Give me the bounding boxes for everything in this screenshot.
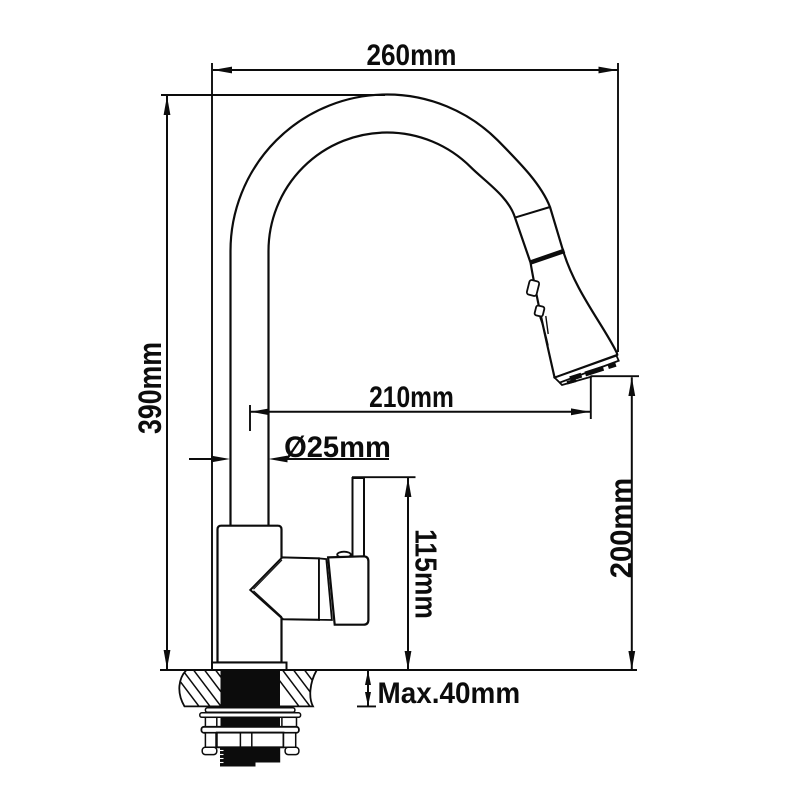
svg-text:210mm: 210mm: [369, 380, 454, 414]
svg-text:115mm: 115mm: [408, 529, 442, 619]
svg-text:Ø25mm: Ø25mm: [284, 430, 391, 463]
svg-text:260mm: 260mm: [367, 39, 457, 72]
svg-text:Max.40mm: Max.40mm: [378, 677, 521, 710]
svg-text:390mm: 390mm: [133, 342, 169, 434]
svg-text:200mm: 200mm: [605, 478, 639, 578]
